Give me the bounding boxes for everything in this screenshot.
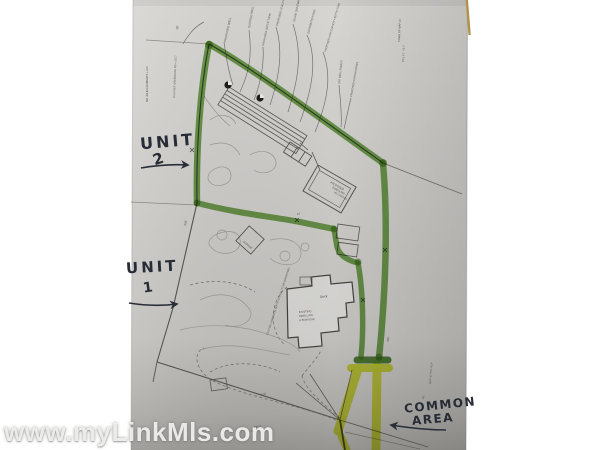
map-tiny-label: N/F JOHN A ROBERTS + CO [145, 67, 149, 102]
survey-map: 10'N/F JOHN A ROBERTS + COPLAN REF. GREE… [0, 0, 600, 450]
unit1-number: 1 [142, 279, 154, 296]
listing-photo: 10'N/F JOHN A ROBERTS + COPLAN REF. GREE… [0, 0, 600, 450]
map-tiny-label: Deck [320, 294, 328, 299]
map-tiny-label: TOWN OF MAP 41 [397, 19, 402, 43]
watermark: www.myLinkMls.com [4, 417, 274, 448]
map-tiny-label: PCL 41 - 41.4 [401, 45, 406, 62]
unit1-label: UNIT [126, 257, 179, 278]
map-tiny-label: 435' [386, 336, 390, 342]
